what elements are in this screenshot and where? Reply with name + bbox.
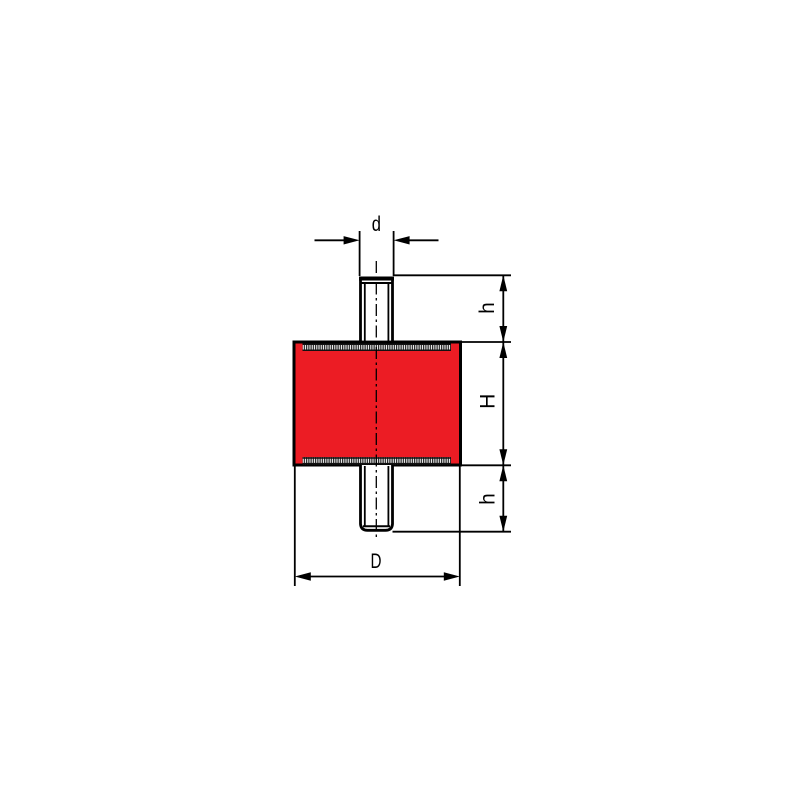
svg-text:h: h bbox=[477, 493, 500, 505]
svg-text:h: h bbox=[476, 302, 499, 314]
svg-text:d: d bbox=[372, 213, 381, 236]
svg-text:H: H bbox=[477, 394, 500, 409]
svg-text:D: D bbox=[371, 550, 382, 573]
